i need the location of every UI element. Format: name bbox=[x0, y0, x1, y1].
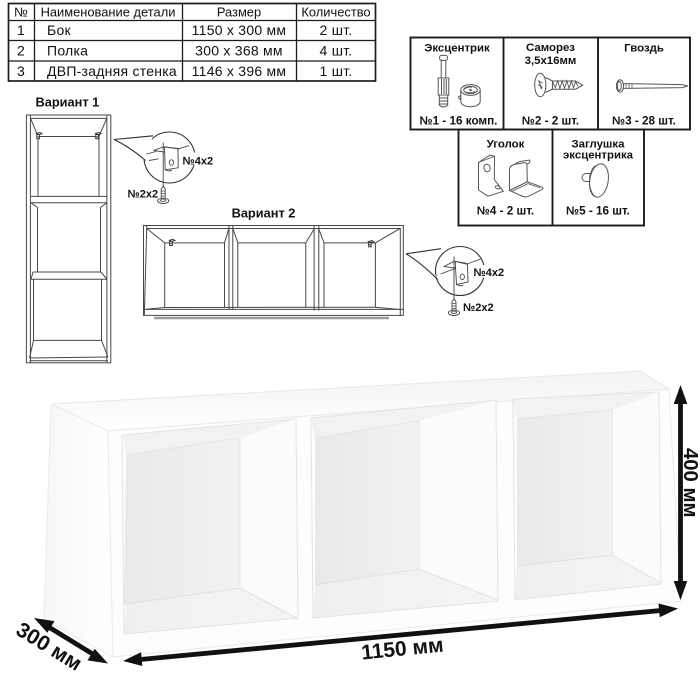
svg-text:3: 3 bbox=[17, 63, 25, 79]
svg-text:Бок: Бок bbox=[47, 22, 71, 38]
svg-text:Полка: Полка bbox=[47, 43, 88, 59]
svg-text:Эксцентрик: Эксцентрик bbox=[424, 43, 490, 55]
svg-text:№: № bbox=[14, 5, 28, 20]
svg-text:Саморез: Саморез bbox=[526, 42, 575, 54]
svg-text:2 шт.: 2 шт. bbox=[320, 22, 353, 38]
svg-text:Количество: Количество bbox=[301, 5, 370, 20]
svg-text:Размер: Размер bbox=[217, 5, 261, 20]
svg-text:Вариант 2: Вариант 2 bbox=[232, 206, 296, 221]
svg-text:№2 - 2 шт.: №2 - 2 шт. bbox=[522, 115, 579, 128]
svg-text:Гвоздь: Гвоздь bbox=[624, 43, 664, 55]
svg-text:№5 - 16 шт.: №5 - 16 шт. bbox=[566, 205, 630, 218]
svg-text:эксцентрика: эксцентрика bbox=[563, 150, 634, 162]
svg-text:1146 x 396 мм: 1146 x 396 мм bbox=[192, 63, 287, 79]
svg-text:№2х2: №2х2 bbox=[128, 189, 159, 201]
svg-text:1150 x 300 мм: 1150 x 300 мм bbox=[192, 22, 287, 38]
svg-text:№4 - 2 шт.: №4 - 2 шт. bbox=[477, 205, 534, 218]
svg-text:Вариант 1: Вариант 1 bbox=[35, 94, 99, 109]
svg-text:3,5х16мм: 3,5х16мм bbox=[525, 55, 577, 67]
svg-text:1 шт.: 1 шт. bbox=[320, 63, 353, 79]
svg-text:2: 2 bbox=[17, 43, 25, 59]
svg-text:400 мм: 400 мм bbox=[679, 448, 700, 517]
svg-text:300 x 368 мм: 300 x 368 мм bbox=[195, 43, 283, 59]
svg-text:1: 1 bbox=[17, 22, 25, 38]
svg-text:№1 - 16 комп.: №1 - 16 комп. bbox=[420, 115, 498, 128]
svg-text:Уголок: Уголок bbox=[487, 139, 525, 151]
svg-text:Наименование детали: Наименование детали bbox=[41, 5, 176, 20]
svg-text:№3 - 28 шт.: №3 - 28 шт. bbox=[612, 115, 676, 128]
svg-text:ДВП-задняя стенка: ДВП-задняя стенка bbox=[47, 63, 177, 79]
svg-text:№4х2: №4х2 bbox=[474, 267, 505, 279]
svg-text:4 шт.: 4 шт. bbox=[320, 43, 353, 59]
svg-text:№4х2: №4х2 bbox=[183, 155, 214, 167]
svg-text:№2х2: №2х2 bbox=[463, 302, 494, 314]
